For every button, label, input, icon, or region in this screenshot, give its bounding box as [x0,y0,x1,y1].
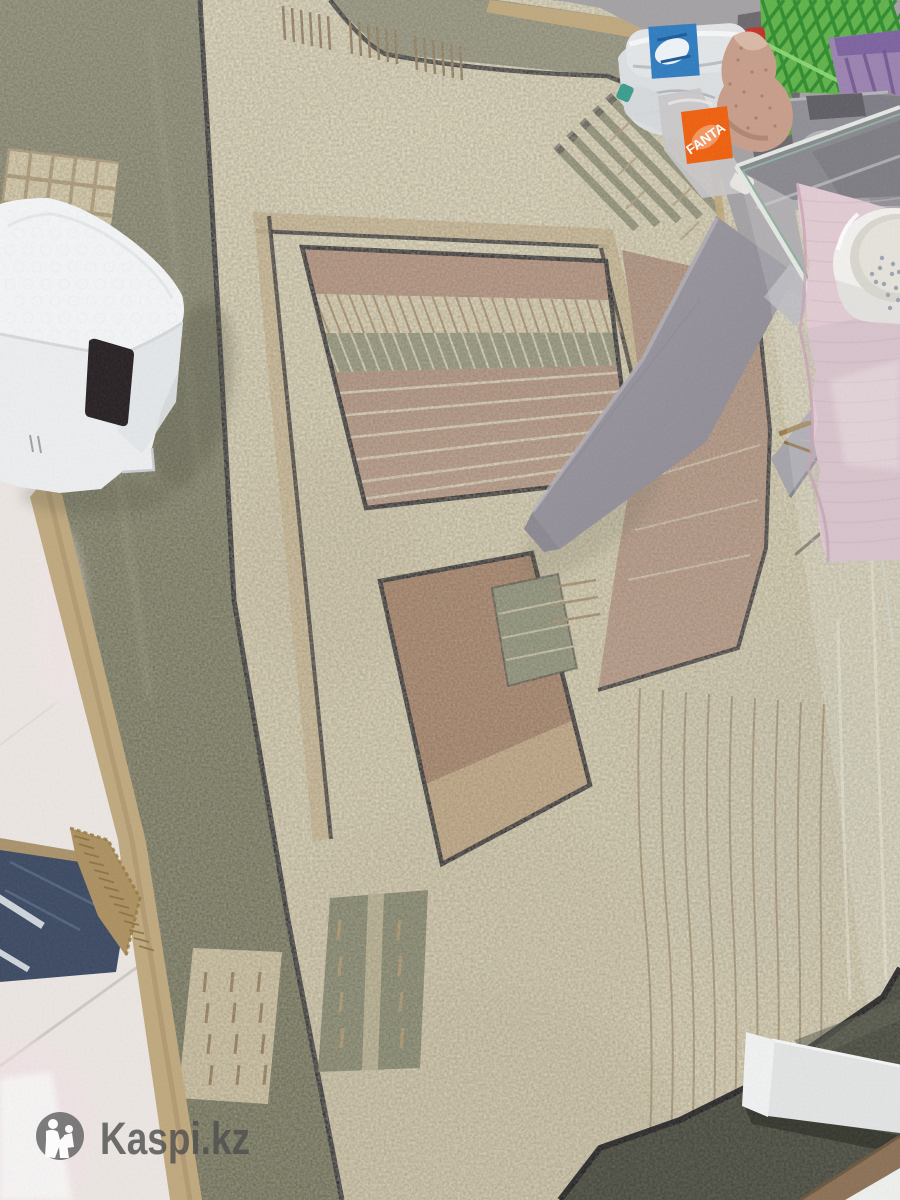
svg-text:Kaspi.kz: Kaspi.kz [100,1113,250,1164]
